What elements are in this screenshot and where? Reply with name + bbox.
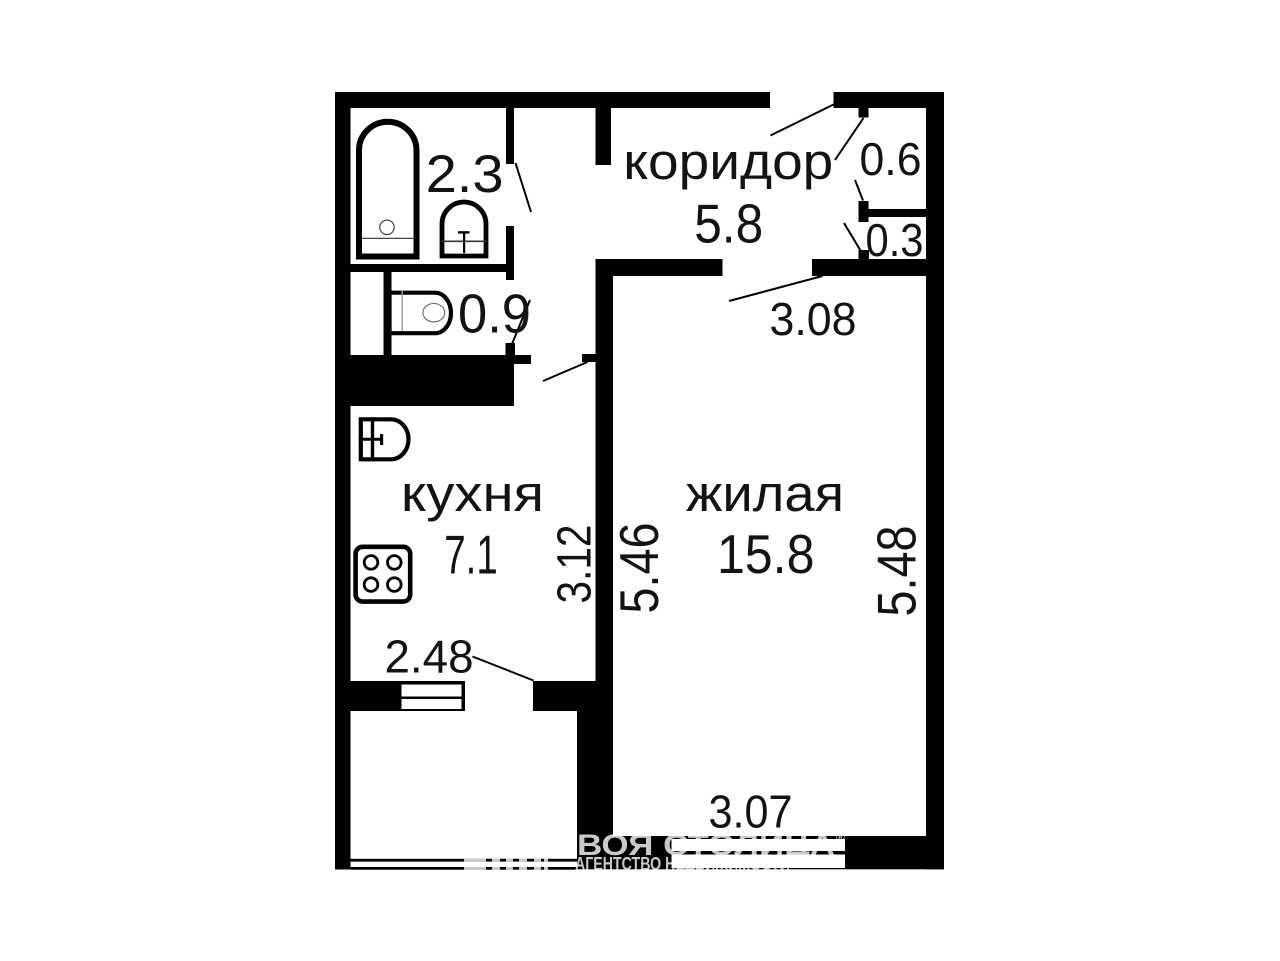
svg-text:жилая: жилая [686, 465, 844, 522]
svg-text:®: ® [836, 830, 845, 844]
svg-text:2.3: 2.3 [426, 145, 504, 204]
svg-text:5.46: 5.46 [608, 523, 670, 614]
svg-text:2.48: 2.48 [385, 631, 474, 683]
svg-text:0.3: 0.3 [866, 214, 924, 266]
svg-text:0.6: 0.6 [860, 133, 922, 185]
svg-text:3.12: 3.12 [549, 525, 602, 604]
svg-text:АГЕНТСТВО НЕДВИЖИМОСТИ: АГЕНТСТВО НЕДВИЖИМОСТИ [575, 854, 790, 874]
svg-text:0.9: 0.9 [458, 283, 531, 345]
svg-text:7.1: 7.1 [444, 524, 498, 586]
svg-text:кухня: кухня [401, 465, 544, 522]
svg-text:5.8: 5.8 [694, 193, 763, 255]
svg-text:3.08: 3.08 [770, 293, 857, 345]
svg-text:коридор: коридор [623, 133, 833, 190]
svg-text:5.48: 5.48 [866, 526, 928, 617]
svg-text:15.8: 15.8 [717, 523, 815, 585]
